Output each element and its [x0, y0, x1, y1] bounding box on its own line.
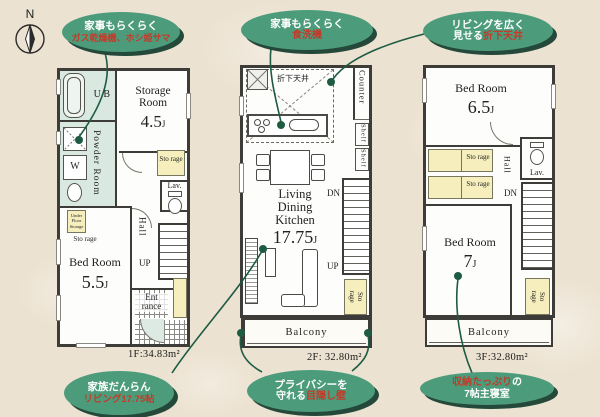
storage-label-under: Sto rage: [71, 236, 99, 243]
kitchen-counter: [247, 114, 328, 137]
room-label-ub: U B: [94, 90, 110, 101]
closet-storage: Sto rage: [428, 149, 493, 172]
room-lav-1f: Lav.: [160, 180, 187, 212]
closet-storage: Sto rage: [428, 176, 493, 199]
stairs-1f: [158, 223, 187, 280]
callout-family-living: 家族だんらん リビング17.75帖: [64, 371, 174, 415]
window: [186, 93, 191, 119]
stove-burner-icon: [258, 126, 265, 133]
side-table-icon: [265, 248, 276, 277]
room-size-bedroom: 5.5J: [65, 273, 125, 292]
area-label-1f: 1F:34.83m²: [128, 349, 180, 360]
bar-counter: Counter: [353, 68, 369, 120]
window: [422, 78, 427, 103]
chair-icon: [311, 154, 325, 166]
chair-icon: [256, 169, 270, 181]
room-size-ldk: 17.75J: [255, 228, 335, 247]
folded-ceiling-label: 折下天井: [276, 75, 310, 83]
stairs-3f: [521, 182, 552, 270]
toilet-icon: [530, 142, 544, 165]
balcony-rail: [247, 343, 366, 344]
washer-icon: W: [63, 155, 87, 180]
plan-3f: Bed Room 6.5J Sto rage Sto rage Hall Lav…: [423, 65, 555, 318]
window: [56, 239, 61, 265]
room-bedroom-7: Bed Room 7J: [440, 236, 500, 270]
room-label-hall-1f: Hall: [137, 217, 146, 237]
room-label-hall-3f: Hall: [502, 156, 510, 174]
room-label-bedroom1: Bed Room: [451, 82, 511, 95]
room-storage-4-5: Storage Room 4.5J: [119, 71, 187, 153]
stairs-dn-label: DN: [504, 189, 517, 198]
wall: [510, 204, 512, 315]
floorplan-canvas: N U B Storage Room 4.5J Sto rage Lav.: [0, 0, 600, 417]
window: [76, 343, 106, 348]
callout-gas-dryer: 家事もらくらく ガス乾燥機、ホシ姫サマ: [62, 12, 180, 52]
washstand-icon: [63, 127, 87, 151]
room-bedroom-6-5: Bed Room 6.5J: [451, 82, 511, 116]
closet-storage: Sto rage: [157, 150, 185, 176]
plan-1f: U B Storage Room 4.5J Sto rage Lav. W Po…: [57, 68, 190, 347]
callout-folded-ceiling: リビングを広く 見せる折下天井: [423, 11, 553, 51]
room-label-lav: Lav.: [162, 182, 187, 190]
area-label-2f: 2F: 32.80m²: [307, 352, 362, 363]
stairs-dn-label: DN: [327, 189, 340, 198]
room-entrance: Ent rance: [135, 290, 168, 318]
door-arc: [490, 122, 513, 145]
sofa-icon: [281, 294, 305, 307]
room-size-storage: 4.5J: [119, 113, 187, 131]
balcony-rail: [429, 342, 549, 343]
window: [56, 295, 61, 321]
stairs-up-label: UP: [327, 262, 339, 271]
wall: [426, 204, 512, 206]
balcony-3f: Balcony: [425, 318, 553, 347]
bathtub-icon: [63, 73, 85, 118]
window: [56, 79, 61, 95]
wall: [60, 206, 130, 208]
room-powder: W Powder Room: [60, 122, 117, 208]
stairs-2f: [342, 178, 369, 275]
plan-2f: 折下天井 Counter Shelf Shelf Living Dining K…: [240, 65, 372, 318]
under-floor-storage: Under Floor Storage: [67, 210, 86, 233]
shelf: Shelf: [355, 148, 369, 171]
room-label-storage: Storage Room: [128, 85, 178, 109]
room-label-bedroom: Bed Room: [65, 256, 125, 269]
compass-icon: N: [8, 4, 52, 62]
stove-burner-icon: [254, 119, 261, 126]
entrance-closet: [173, 278, 187, 318]
room-size-bedroom1: 6.5J: [451, 98, 511, 117]
svg-text:N: N: [26, 7, 35, 21]
window: [239, 96, 244, 116]
window: [422, 226, 427, 251]
room-lav-3f: Lav.: [520, 137, 552, 180]
room-size-bedroom2: 7J: [440, 252, 500, 271]
shelf: Shelf: [355, 123, 369, 146]
room-label-bedroom2: Bed Room: [440, 236, 500, 249]
room-label-ldk: Living Dining Kitchen: [265, 188, 325, 227]
door-arc: [122, 153, 142, 173]
callout-main-bedroom: 収納たっぷりの 7帖主寝室: [420, 372, 554, 405]
closet-storage: Sto rage: [525, 278, 550, 315]
window: [551, 84, 556, 109]
window: [239, 163, 244, 193]
balcony-2f: Balcony: [241, 318, 372, 348]
toilet-icon: [168, 191, 182, 214]
room-bath-ub: U B: [60, 71, 117, 122]
area-label-3f: 3F:32.80m²: [476, 352, 528, 363]
basin-icon: [67, 183, 82, 202]
refrigerator-icon: [247, 69, 268, 90]
room-bedroom-5-5: Bed Room 5.5J: [65, 256, 125, 291]
chair-icon: [256, 154, 270, 166]
stairs-up-label: UP: [139, 259, 151, 268]
tv-board-icon: [245, 238, 258, 304]
callout-dishwasher: 家事もらくらく 食洗機: [241, 10, 373, 50]
closet-storage: Sto rage: [344, 279, 367, 315]
chair-icon: [311, 169, 325, 181]
callout-privacy-wall: プライバシーを 守れる目隠し壁: [247, 370, 375, 412]
room-label-powder: Powder Room: [90, 130, 100, 202]
wall: [426, 145, 521, 147]
window: [56, 131, 61, 145]
sink-icon: [289, 119, 319, 131]
stove-burner-icon: [263, 119, 270, 126]
dining-table-icon: [270, 150, 310, 185]
